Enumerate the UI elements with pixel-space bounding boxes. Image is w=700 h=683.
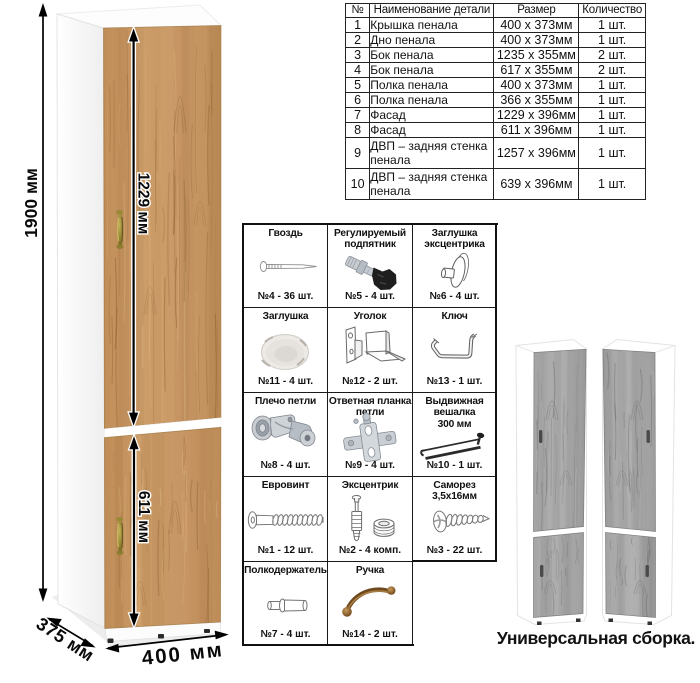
svg-text:611 мм: 611 мм bbox=[135, 491, 152, 543]
svg-text:400 мм: 400 мм bbox=[141, 638, 225, 670]
svg-text:1229 мм: 1229 мм bbox=[135, 173, 152, 235]
svg-text:1900 мм: 1900 мм bbox=[21, 168, 41, 238]
svg-text:375 мм: 375 мм bbox=[33, 613, 98, 665]
